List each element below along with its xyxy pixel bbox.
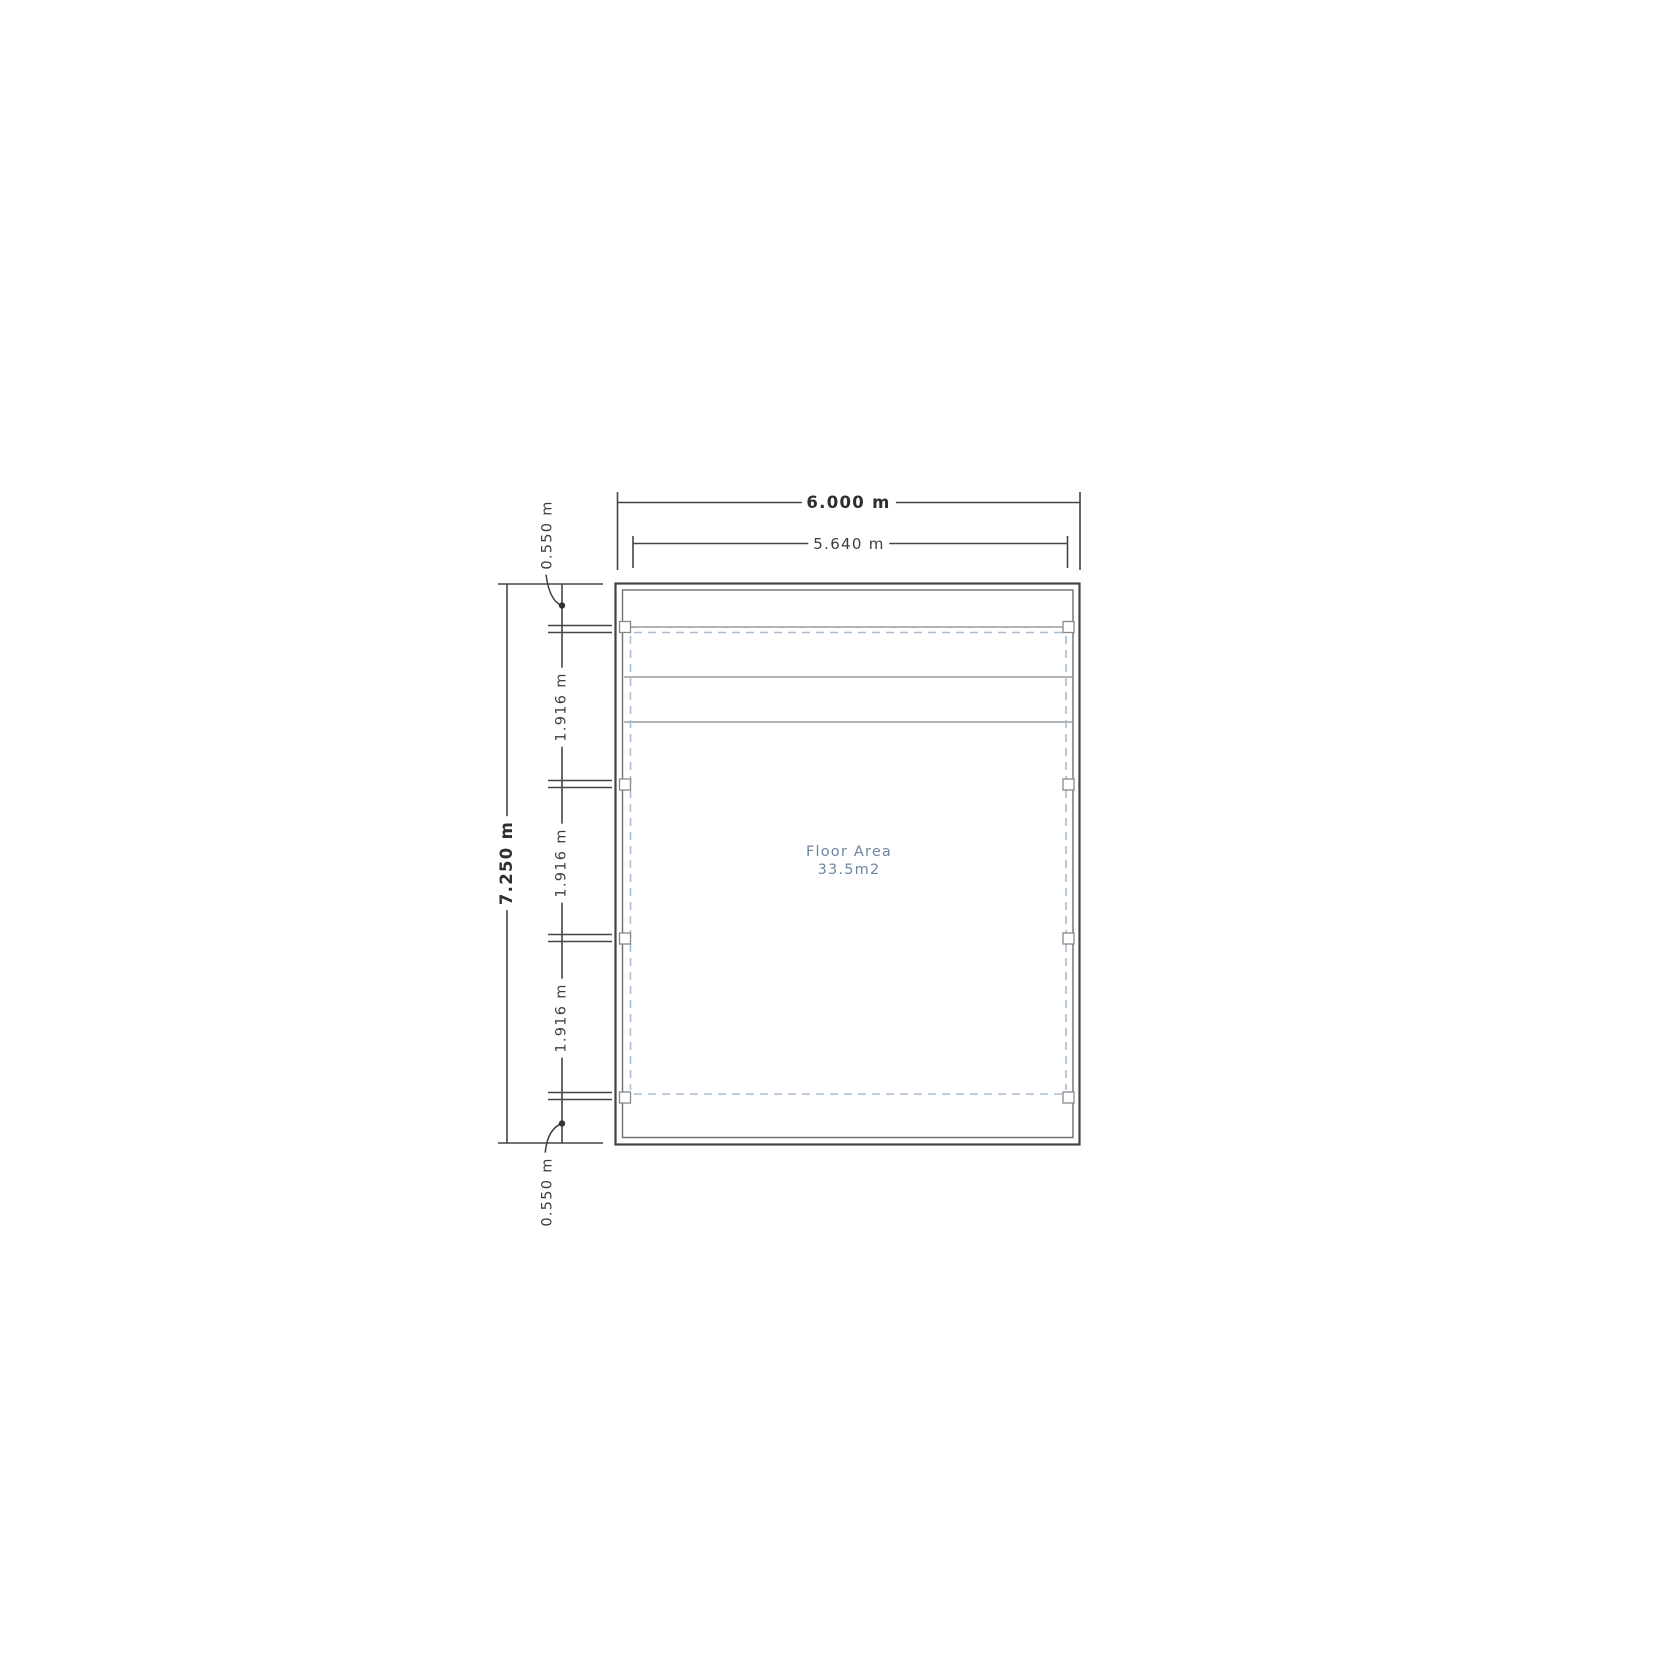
overall-width-dim-label: 6.000 m — [801, 492, 895, 514]
top-offset-dim-label: 0.550 m — [538, 495, 557, 574]
interior-bearer-lines — [624, 627, 1072, 722]
post-top-right — [1063, 622, 1074, 633]
inner-width-dim-label: 5.640 m — [808, 534, 889, 554]
floor-area-title: Floor Area — [806, 843, 892, 861]
post-mid2-left — [620, 933, 631, 944]
post-mid1-right — [1063, 779, 1074, 790]
bottom-offset-leader — [545, 1124, 562, 1156]
floor-plan-linework — [0, 0, 1676, 1676]
floor-area-value: 33.5m2 — [806, 861, 892, 879]
post-top-left — [620, 622, 631, 633]
post-mid1-left — [620, 779, 631, 790]
floor-area-annotation: Floor Area 33.5m2 — [806, 843, 892, 879]
floor-plan-canvas: 6.000 m 5.640 m 7.250 m 0.550 m 1.916 m … — [0, 0, 1676, 1676]
post-bottom-left — [620, 1092, 631, 1103]
post-bottom-right — [1063, 1092, 1074, 1103]
post-mid2-right — [1063, 933, 1074, 944]
bottom-offset-leader-dot — [559, 1120, 565, 1126]
top-offset-leader-dot — [559, 602, 565, 608]
overall-height-dim-label: 7.250 m — [496, 816, 518, 910]
bay-1-dim-label: 1.916 m — [552, 667, 571, 746]
bottom-offset-dim-label: 0.550 m — [538, 1152, 557, 1231]
bay-2-dim-label: 1.916 m — [552, 823, 571, 902]
bay-3-dim-label: 1.916 m — [552, 978, 571, 1057]
